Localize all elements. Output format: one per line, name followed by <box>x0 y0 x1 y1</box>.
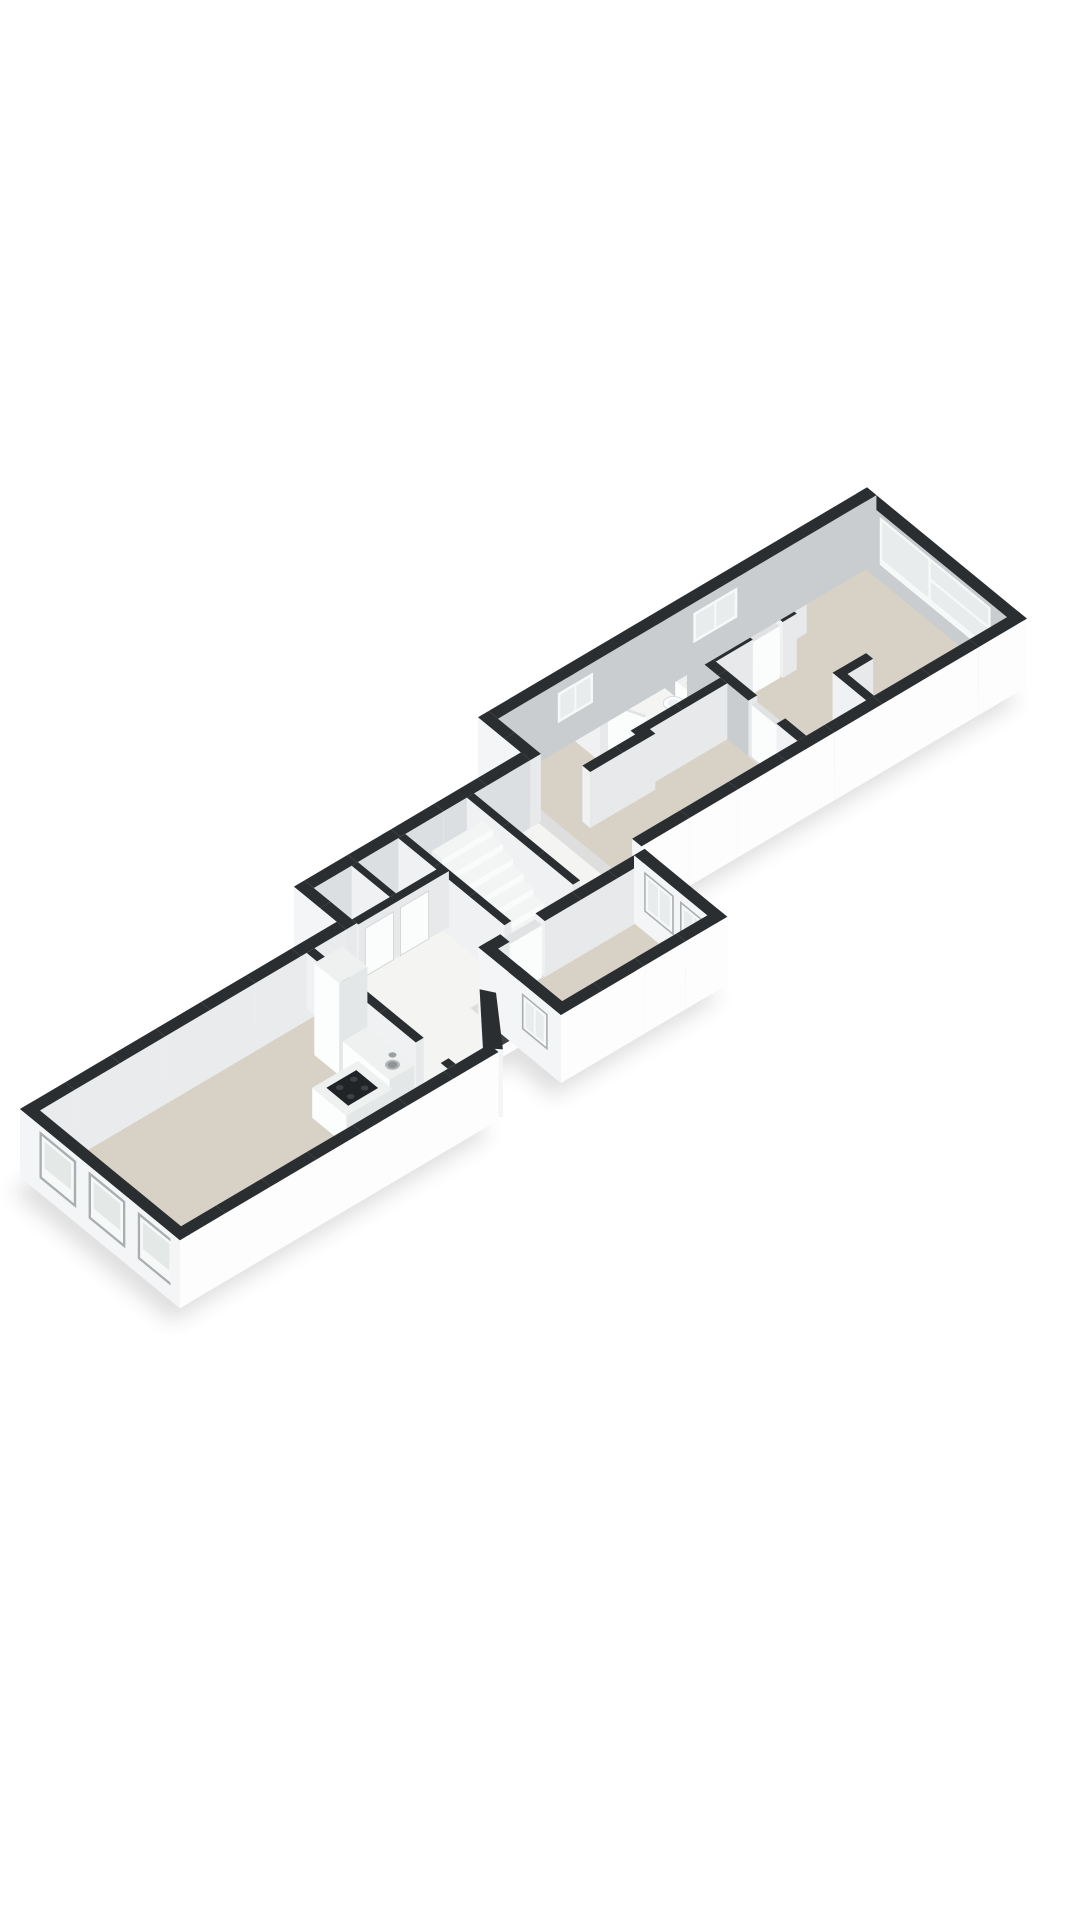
floorplan-3d-canvas <box>0 0 1080 1920</box>
floorplan-page <box>0 0 1080 1920</box>
